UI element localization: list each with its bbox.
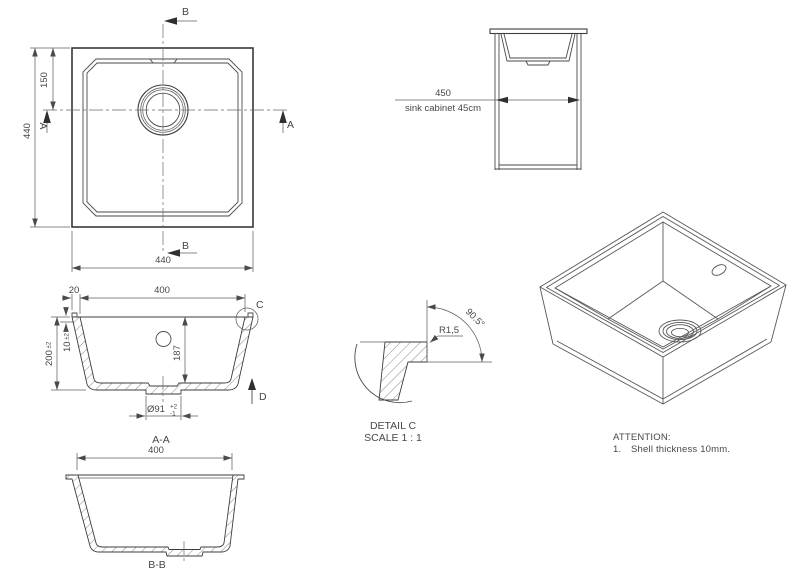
body-edge-right xyxy=(771,285,786,342)
dim-187-depth: 187 xyxy=(172,317,185,383)
sink-outer-edge xyxy=(72,48,253,227)
sink-bowl-profile xyxy=(501,34,575,65)
sink-rim-inner-edge xyxy=(83,59,242,216)
detail-c-title: DETAIL C xyxy=(370,420,417,432)
dim-label-radius: R1,5 xyxy=(439,325,459,336)
dim-arrow-icon xyxy=(496,97,508,103)
dim-label-angle: 90.5° xyxy=(463,306,487,330)
dim-label-440-left: 440 xyxy=(22,123,33,139)
dim-label-440-bottom: 440 xyxy=(155,255,171,266)
dim-150-drain-offset: 150 xyxy=(39,48,53,110)
section-aa-view: 20 400 200±2 10±2 187 xyxy=(44,285,267,446)
attention-item-number: 1. xyxy=(613,444,621,455)
section-label-a-left: A xyxy=(37,122,49,129)
bowl-edge-right xyxy=(718,286,771,319)
sink-drawing-canvas: B B A A 440 150 xyxy=(0,0,800,579)
dim-label-drain-tol-plus: +2 xyxy=(170,404,178,411)
bowl-edge-left xyxy=(555,288,608,319)
section-label-b-top: B xyxy=(182,6,189,18)
section-arrow-icon xyxy=(164,17,177,25)
section-label-b-bottom: B xyxy=(182,240,189,252)
detail-c-scale: SCALE 1 : 1 xyxy=(364,432,422,444)
dim-label-10: 10±2 xyxy=(62,332,73,352)
section-arrow-icon xyxy=(279,110,287,123)
dim-arrow-icon xyxy=(568,97,580,103)
detail-c-view: 90.5° R1,5 DETAIL C SCALE 1 : 1 xyxy=(355,300,492,444)
dim-label-400-aa: 400 xyxy=(154,285,170,296)
detail-c-label: C xyxy=(256,299,264,311)
cabinet-caption: sink cabinet 45cm xyxy=(405,103,481,114)
dim-20-rim: 20 xyxy=(62,285,79,310)
dim-drain-diameter: Ø91 +2 -1 xyxy=(129,396,198,420)
section-label-a-right: A xyxy=(287,119,294,131)
section-bb-title: B-B xyxy=(148,559,166,571)
direction-d-arrow: D xyxy=(248,378,267,404)
dim-label-400-bb: 400 xyxy=(148,445,164,456)
direction-d-label: D xyxy=(259,391,267,403)
dim-450-cabinet: 450 sink cabinet 45cm xyxy=(395,88,580,114)
countertop xyxy=(490,29,587,34)
section-marker-b-top: B xyxy=(164,6,197,25)
dim-400-bb: 400 xyxy=(77,445,232,470)
section-marker-a-right: A xyxy=(279,110,294,133)
overflow-hole-3d xyxy=(710,262,728,277)
overflow-notch xyxy=(150,59,177,63)
cabinet-view: 450 sink cabinet 45cm xyxy=(395,29,587,170)
dim-angle: 90.5° xyxy=(427,300,492,362)
section-marker-b-bottom: B xyxy=(167,240,197,257)
dim-radius: R1,5 xyxy=(430,325,463,343)
technical-drawing-sheet: B B A A 440 150 xyxy=(0,0,800,579)
bowl-bottom-3d xyxy=(608,281,718,349)
dim-label-20: 20 xyxy=(69,285,80,296)
dim-label-150: 150 xyxy=(39,72,50,88)
dim-label-200: 200±2 xyxy=(44,341,55,366)
dim-label-450: 450 xyxy=(435,88,451,99)
dim-label-187: 187 xyxy=(172,345,183,361)
section-bb-wall-hatch xyxy=(66,475,244,556)
dim-440-bottom: 440 xyxy=(72,231,253,272)
body-edge-left xyxy=(540,287,553,344)
attention-title: ATTENTION: xyxy=(613,432,671,443)
isometric-view xyxy=(540,212,786,404)
detail-c-hatch xyxy=(379,342,427,400)
section-arrow-icon xyxy=(43,110,51,123)
overflow-hole-section xyxy=(156,332,171,347)
section-aa-wall-hatch xyxy=(72,317,253,394)
direction-arrow-icon xyxy=(248,378,256,390)
dim-label-drain: Ø91 xyxy=(147,404,165,415)
top-plan-view: B B A A 440 150 xyxy=(22,6,294,272)
attention-item-text: Shell thickness 10mm. xyxy=(631,444,730,455)
drain-hole-3d xyxy=(672,328,689,336)
dim-label-drain-tol-minus: -1 xyxy=(170,411,176,418)
section-marker-a-left: A xyxy=(37,110,51,133)
body-bottom-edges xyxy=(553,342,771,404)
dim-400-aa: 400 xyxy=(80,285,245,314)
section-bb-view: 400 B-B xyxy=(66,445,244,571)
attention-note: ATTENTION: 1. Shell thickness 10mm. xyxy=(613,432,730,455)
rim-lips xyxy=(72,313,253,317)
